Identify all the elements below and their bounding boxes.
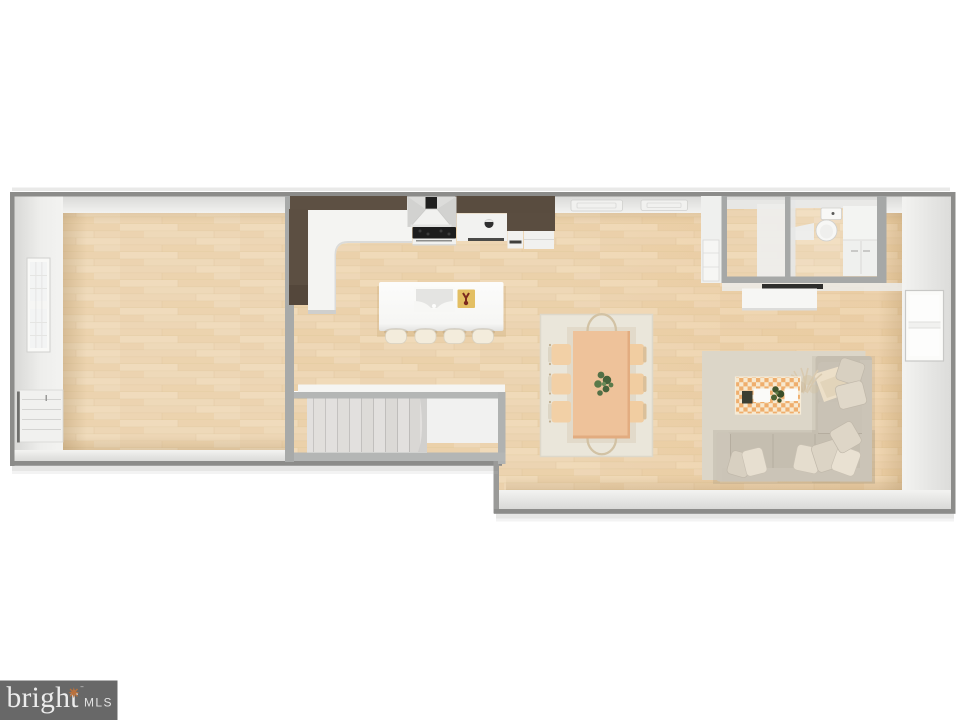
svg-text:bright: bright: [7, 682, 80, 714]
svg-text:MLS: MLS: [84, 696, 113, 710]
